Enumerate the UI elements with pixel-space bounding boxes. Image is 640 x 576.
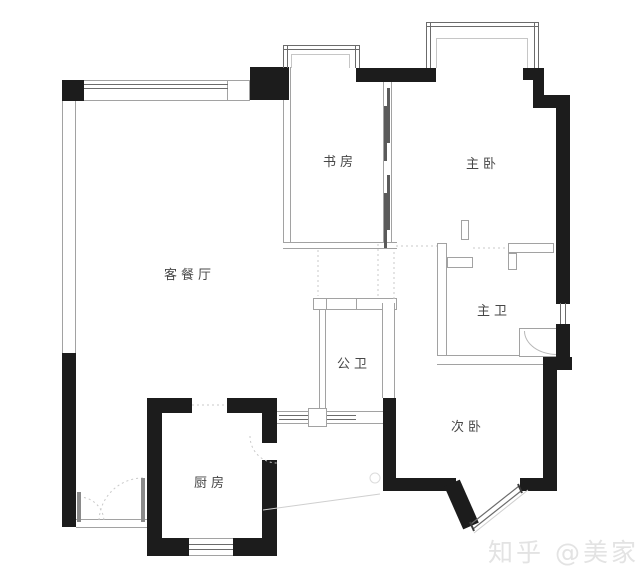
room-label-kitchen: 厨房	[194, 472, 228, 491]
exterior-outline	[263, 494, 380, 510]
floor-plan: 客餐厅 书房 主卧 主卫 公卫 次卧 厨房 知乎 @美家手记	[0, 0, 640, 576]
room-label-living-dining: 客餐厅	[164, 264, 215, 283]
room-label-guest-bathroom: 公卫	[337, 353, 371, 372]
room-label-study: 书房	[323, 151, 357, 170]
kitchen-door-swing-arc	[250, 436, 277, 463]
bedroom2-corner-window-line	[471, 486, 519, 524]
room-label-second-bedroom: 次卧	[451, 416, 485, 435]
room-label-master-bedroom: 主卧	[466, 153, 500, 172]
entry-door-leaf	[77, 492, 81, 522]
wall-bedroom2-angled	[452, 483, 471, 526]
exterior-outline	[474, 490, 528, 533]
column-marker	[370, 473, 380, 483]
bedroom2-corner-window-line	[473, 491, 521, 529]
entry-door-swing-arc	[99, 478, 143, 522]
entry-door-leaf	[141, 478, 145, 522]
entry-door-swing-arc	[79, 497, 104, 522]
watermark: 知乎 @美家手记	[488, 533, 640, 569]
annotations-overlay	[0, 0, 640, 576]
room-label-master-bathroom: 主卫	[477, 300, 511, 319]
